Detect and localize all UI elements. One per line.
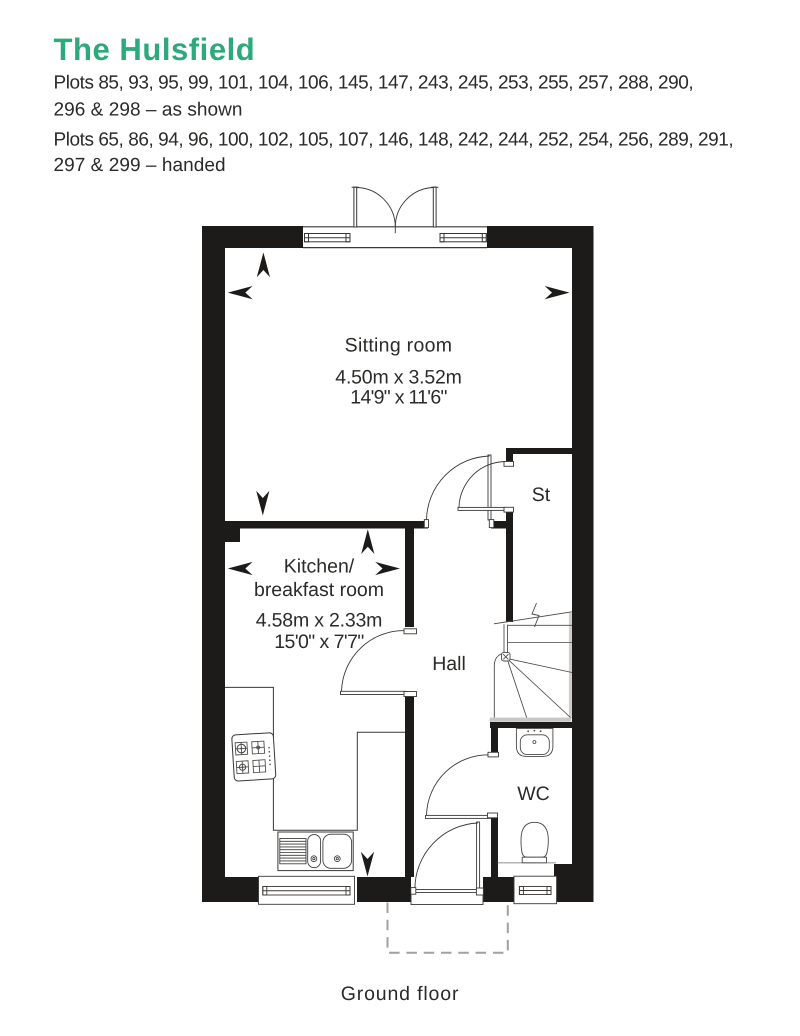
svg-text:The Hulsfield: The Hulsfield [54,32,256,67]
svg-text:296 & 298 – as shown: 296 & 298 – as shown [54,99,243,120]
svg-text:4.50m x 3.52m: 4.50m x 3.52m [335,366,461,388]
svg-text:Hall: Hall [432,653,466,675]
svg-text:St: St [532,484,551,506]
svg-text:Kitchen/: Kitchen/ [284,556,355,578]
svg-text:Ground floor: Ground floor [341,983,460,1005]
svg-text:breakfast room: breakfast room [254,579,384,601]
svg-text:4.58m x 2.33m: 4.58m x 2.33m [256,610,382,632]
svg-text:15'0" x 7'7": 15'0" x 7'7" [274,631,364,653]
svg-text:Plots 65, 86, 94, 96, 100, 102: Plots 65, 86, 94, 96, 100, 102, 105, 107… [54,130,734,151]
svg-text:Sitting room: Sitting room [345,334,453,356]
svg-text:WC: WC [517,783,550,805]
svg-text:14'9" x 11'6": 14'9" x 11'6" [350,387,447,409]
svg-text:Plots 85, 93, 95, 99, 101, 104: Plots 85, 93, 95, 99, 101, 104, 106, 145… [54,72,694,93]
svg-text:297 & 299 – handed: 297 & 299 – handed [54,155,226,176]
